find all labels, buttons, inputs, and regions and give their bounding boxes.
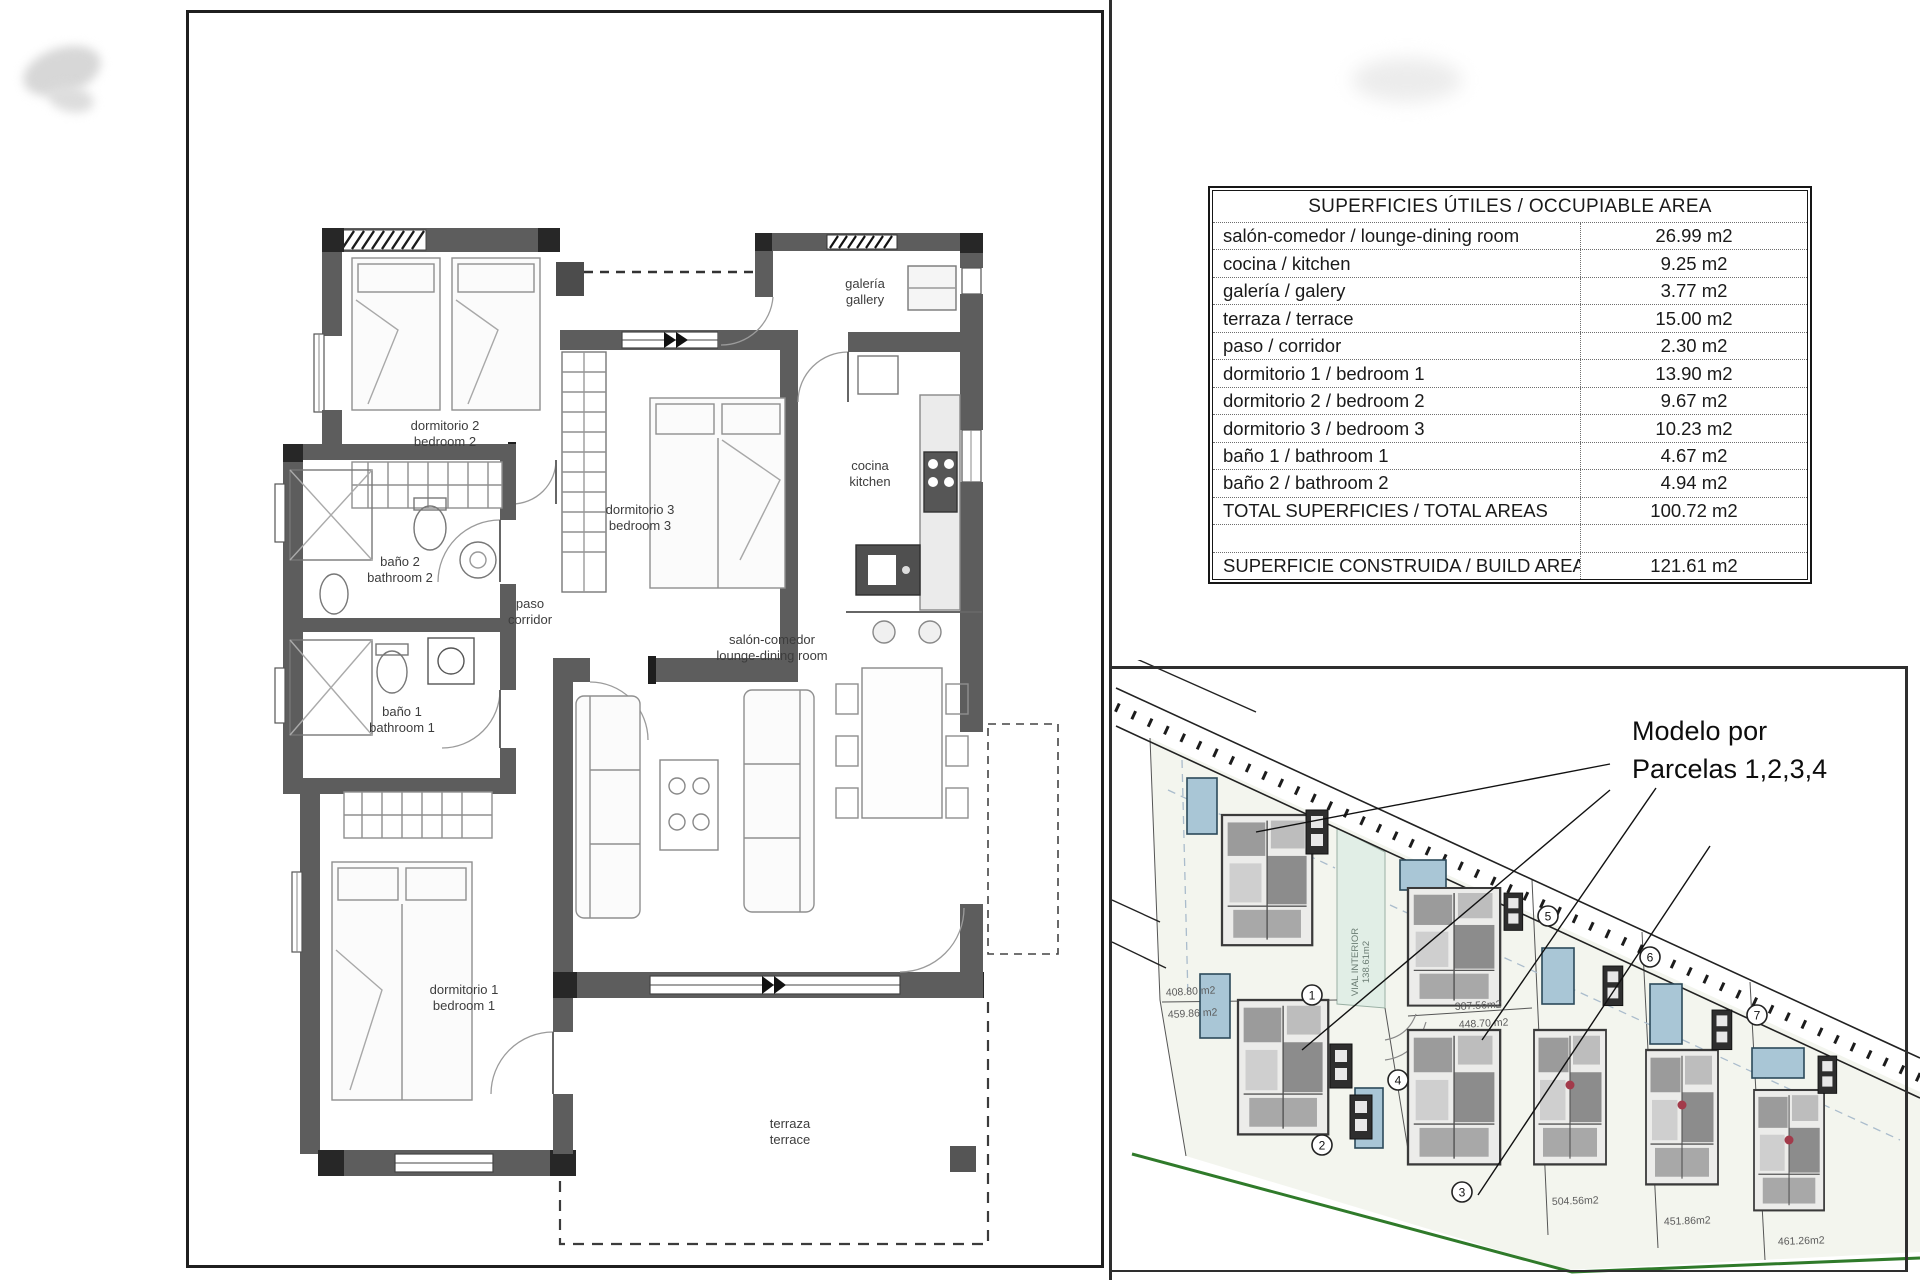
areas-table: SUPERFICIES ÚTILES / OCCUPIABLE AREA sal… xyxy=(1208,186,1812,584)
floor-plan-drawing: dormitorio 2 bedroom 2 dormitorio 3 bedr… xyxy=(186,10,1104,1268)
area-row: galería / galery3.77 m2 xyxy=(1213,278,1807,305)
build-area-row: SUPERFICIE CONSTRUIDA / BUILD AREA121.61… xyxy=(1213,553,1807,579)
room-label-dorm1-en: bedroom 1 xyxy=(433,998,495,1013)
red-marker xyxy=(1678,1101,1687,1110)
areas-table-title: SUPERFICIES ÚTILES / OCCUPIABLE AREA xyxy=(1213,191,1807,223)
room-label-salon-en: lounge-dining room xyxy=(716,648,827,663)
svg-text:138.61m2: 138.61m2 xyxy=(1361,941,1372,983)
area-row: cocina / kitchen9.25 m2 xyxy=(1213,250,1807,277)
room-label-dorm2-es: dormitorio 2 xyxy=(411,418,480,433)
room-label-bano2-en: bathroom 2 xyxy=(367,570,433,585)
parcel-area-label: 387.56m2 xyxy=(1455,999,1502,1013)
parcel-number: 2 xyxy=(1319,1139,1326,1153)
bottom-panel-border xyxy=(1110,1270,1908,1272)
area-row: salón-comedor / lounge-dining room26.99 … xyxy=(1213,223,1807,250)
document-page: dormitorio 2 bedroom 2 dormitorio 3 bedr… xyxy=(0,0,1920,1280)
parcel-number: 6 xyxy=(1647,951,1654,965)
room-label-terraza-es: terraza xyxy=(770,1116,811,1131)
svg-text:VIAL INTERIOR: VIAL INTERIOR xyxy=(1350,928,1361,996)
parcel-number: 5 xyxy=(1545,910,1552,924)
room-label-bano1-en: bathroom 1 xyxy=(369,720,435,735)
parcel-number: 1 xyxy=(1309,989,1316,1003)
panel-divider-horizontal xyxy=(1110,666,1908,669)
room-label-dorm3-en: bedroom 3 xyxy=(609,518,671,533)
area-row: paso / corridor2.30 m2 xyxy=(1213,333,1807,360)
area-row: baño 2 / bathroom 24.94 m2 xyxy=(1213,470,1807,497)
area-row: dormitorio 2 / bedroom 29.67 m2 xyxy=(1213,388,1807,415)
red-marker xyxy=(1785,1136,1794,1145)
room-label-galeria-es: galería xyxy=(845,276,886,291)
room-label-paso-es: paso xyxy=(516,596,544,611)
room-label-paso-en: corridor xyxy=(508,612,553,627)
red-marker xyxy=(1566,1081,1575,1090)
room-label-bano1-es: baño 1 xyxy=(382,704,422,719)
areas-total-row: TOTAL SUPERFICIES / TOTAL AREAS100.72 m2 xyxy=(1213,498,1807,525)
room-label-dorm2-en: bedroom 2 xyxy=(414,434,476,449)
room-label-bano2-es: baño 2 xyxy=(380,554,420,569)
room-label-dorm3-es: dormitorio 3 xyxy=(606,502,675,517)
parcel-number: 7 xyxy=(1754,1009,1761,1023)
parcel-area-label: 504.56m2 xyxy=(1552,1194,1599,1208)
room-label-cocina-es: cocina xyxy=(851,458,889,473)
site-plan-drawing: 1 2 3 4 5 6 7 408.80 m2 459.86 m2 387.56… xyxy=(1110,660,1920,1280)
parcel-number: 4 xyxy=(1395,1074,1402,1088)
room-label-terraza-en: terrace xyxy=(770,1132,810,1147)
spacer-row xyxy=(1213,525,1807,552)
room-label-salon-es: salón-comedor xyxy=(729,632,816,647)
area-row: baño 1 / bathroom 14.67 m2 xyxy=(1213,443,1807,470)
parcel-area-label: 451.86m2 xyxy=(1664,1214,1711,1228)
parcel-area-label: 461.26m2 xyxy=(1778,1234,1825,1248)
parcel-number: 3 xyxy=(1459,1186,1466,1200)
scan-smudge xyxy=(1352,58,1462,102)
area-row: dormitorio 3 / bedroom 310.23 m2 xyxy=(1213,415,1807,442)
room-label-galeria-en: gallery xyxy=(846,292,885,307)
room-label-cocina-en: kitchen xyxy=(849,474,890,489)
area-row: terraza / terrace15.00 m2 xyxy=(1213,305,1807,332)
area-row: dormitorio 1 / bedroom 113.90 m2 xyxy=(1213,360,1807,387)
room-label-dorm1-es: dormitorio 1 xyxy=(430,982,499,997)
right-panel-border xyxy=(1905,666,1908,1272)
panel-divider-vertical xyxy=(1109,0,1112,1280)
scan-smudge xyxy=(46,82,96,117)
